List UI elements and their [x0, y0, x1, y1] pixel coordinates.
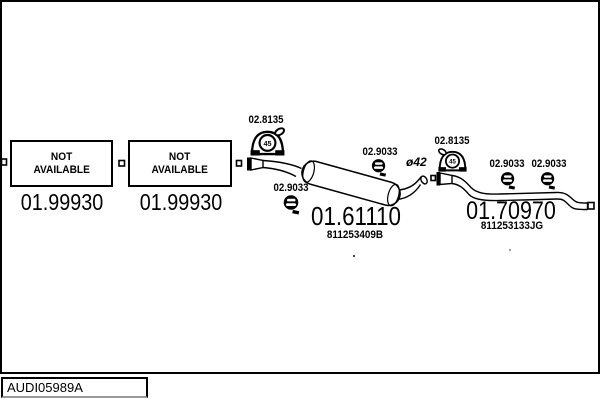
mid-clamp-icon	[371, 158, 387, 178]
mid-clamp-code-label: 02.9033	[354, 146, 407, 158]
rear-clamp-2-code-label: 02.9033	[523, 158, 576, 170]
availability-code-2: 01.99930	[138, 189, 224, 216]
footer-image-code-box: AUDI05989A	[1, 377, 148, 398]
front-clamp-code-label: 02.9033	[265, 182, 318, 194]
not-available-line1: NOT	[51, 151, 72, 164]
pipe-diameter-label: ø42	[406, 155, 427, 169]
availability-code-1: 01.99930	[19, 189, 105, 216]
rear-clamp-2-icon	[540, 171, 556, 191]
footer-image-code: AUDI05989A	[7, 380, 83, 395]
front-mount-code-label: 02.8135	[240, 114, 293, 126]
front-rubber-mount-icon: 45	[249, 126, 286, 156]
rear-pipe-part-number: 811253133JG	[467, 220, 557, 232]
middle-silencer-part-number: 811253409B	[310, 229, 400, 241]
front-clamp-icon	[283, 194, 300, 216]
catalog-diagram-page: NOT AVAILABLE 01.99930 NOT AVAILABLE 01.…	[0, 0, 600, 400]
middle-silencer-code: 01.61110	[304, 201, 407, 232]
rear-mount-badge: 45	[449, 160, 456, 166]
not-available-line2: AVAILABLE	[33, 164, 89, 177]
rear-rubber-mount-icon: 45	[437, 147, 468, 172]
rear-clamp-1-icon	[500, 171, 516, 191]
not-available-line1: NOT	[169, 151, 190, 164]
rear-mount-code-label: 02.8135	[426, 135, 479, 147]
not-available-box-2: NOT AVAILABLE	[128, 140, 232, 187]
not-available-line2: AVAILABLE	[152, 164, 208, 177]
front-mount-badge: 45	[263, 139, 271, 148]
not-available-box-1: NOT AVAILABLE	[10, 140, 113, 187]
